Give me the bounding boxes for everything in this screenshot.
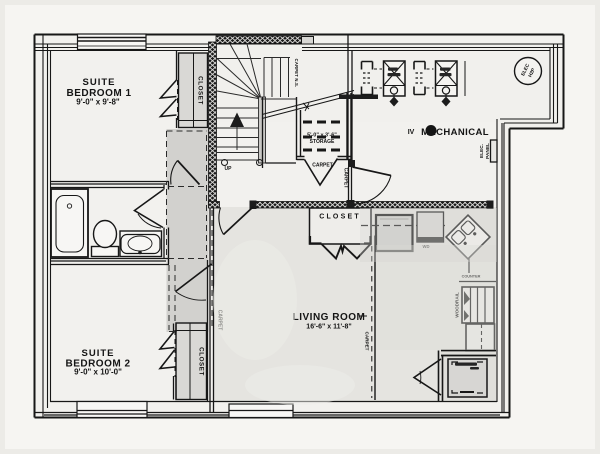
svg-text:SUITE: SUITE <box>83 77 116 88</box>
svg-text:CARPET N.S.: CARPET N.S. <box>294 59 299 88</box>
svg-text:CARPET: CARPET <box>365 332 370 351</box>
svg-text:9'-0" x 9'-8": 9'-0" x 9'-8" <box>76 98 120 107</box>
svg-text:IV: IV <box>408 129 415 136</box>
svg-text:CLOSET: CLOSET <box>319 214 361 221</box>
svg-text:LIVING ROOM: LIVING ROOM <box>293 312 366 323</box>
svg-text:9'-0" x 10'-0": 9'-0" x 10'-0" <box>74 368 122 377</box>
svg-text:SUITE: SUITE <box>82 348 115 359</box>
svg-text:CLOSET: CLOSET <box>197 76 204 105</box>
svg-text:STORAGE: STORAGE <box>310 139 335 145</box>
svg-text:PANEL: PANEL <box>485 143 491 159</box>
svg-text:ELEC.: ELEC. <box>479 144 485 158</box>
svg-text:UP: UP <box>225 166 233 172</box>
svg-text:CLOSET: CLOSET <box>198 347 205 376</box>
svg-text:CARPET: CARPET <box>312 163 333 169</box>
svg-text:CARPET: CARPET <box>343 168 349 189</box>
svg-text:16'-6" x 11'-8": 16'-6" x 11'-8" <box>306 324 351 331</box>
svg-text:5'-0" x 3'-6": 5'-0" x 3'-6" <box>307 133 337 139</box>
